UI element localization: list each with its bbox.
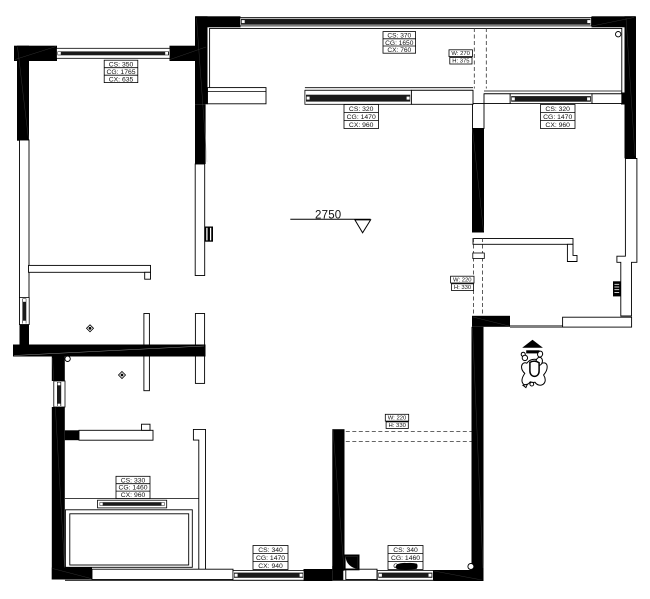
svg-text:CS: 370: CS: 370: [387, 33, 411, 40]
svg-text:CS: 320: CS: 320: [349, 106, 374, 113]
svg-text:H: 330: H: 330: [389, 423, 407, 429]
svg-text:CX: 760: CX: 760: [387, 47, 411, 54]
svg-text:CG: 1650: CG: 1650: [385, 40, 414, 47]
svg-text:CS: 350: CS: 350: [109, 61, 134, 68]
svg-text:W: 270: W: 270: [451, 51, 470, 57]
svg-text:CX: 940: CX: 940: [258, 563, 283, 570]
svg-text:CG: 1470: CG: 1470: [256, 555, 285, 562]
svg-text:CX: 635: CX: 635: [109, 76, 134, 83]
svg-text:CG: 1460: CG: 1460: [118, 485, 147, 492]
svg-text:CG: 1470: CG: 1470: [543, 114, 572, 121]
svg-text:CG: 1470: CG: 1470: [347, 114, 376, 121]
svg-text:CG: 1460: CG: 1460: [391, 555, 420, 562]
svg-text:CS: 340: CS: 340: [258, 547, 283, 554]
svg-text:CX: 960: CX: 960: [545, 122, 570, 129]
svg-text:CS: 340: CS: 340: [393, 547, 418, 554]
svg-text:H: 330: H: 330: [454, 285, 472, 291]
svg-text:H: 375: H: 375: [452, 59, 470, 65]
svg-text:CG: 1765: CG: 1765: [106, 69, 135, 76]
svg-text:CS: 330: CS: 330: [121, 477, 146, 484]
svg-text:CX: 960: CX: 960: [121, 492, 146, 499]
svg-text:CX: 960: CX: 960: [349, 122, 374, 129]
svg-text:W: 220: W: 220: [453, 278, 472, 284]
svg-text:W: 220: W: 220: [388, 416, 407, 422]
svg-text:CS: 320: CS: 320: [545, 106, 570, 113]
